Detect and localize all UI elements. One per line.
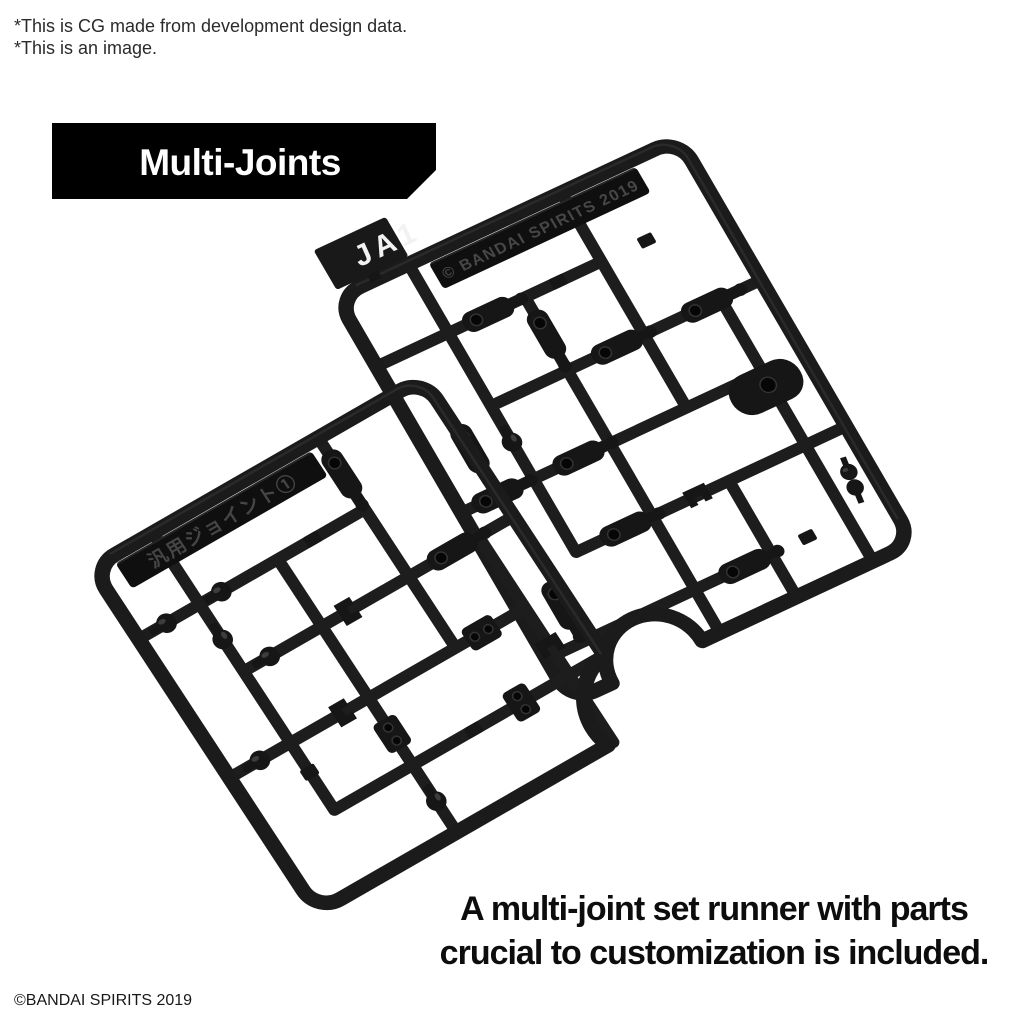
copyright-line: ©BANDAI SPIRITS 2019 [14, 992, 192, 1009]
caption-line-1: A multi-joint set runner with parts [460, 890, 968, 928]
multi-joints-banner: Multi-Joints [52, 123, 436, 199]
caption-line-2: crucial to customization is included. [440, 934, 989, 972]
disclaimer-line-2: *This is an image. [14, 38, 157, 58]
banner-label: Multi-Joints [139, 142, 341, 183]
product-image: *This is CG made from development design… [0, 0, 1024, 1024]
disclaimer-line-1: *This is CG made from development design… [14, 16, 407, 36]
